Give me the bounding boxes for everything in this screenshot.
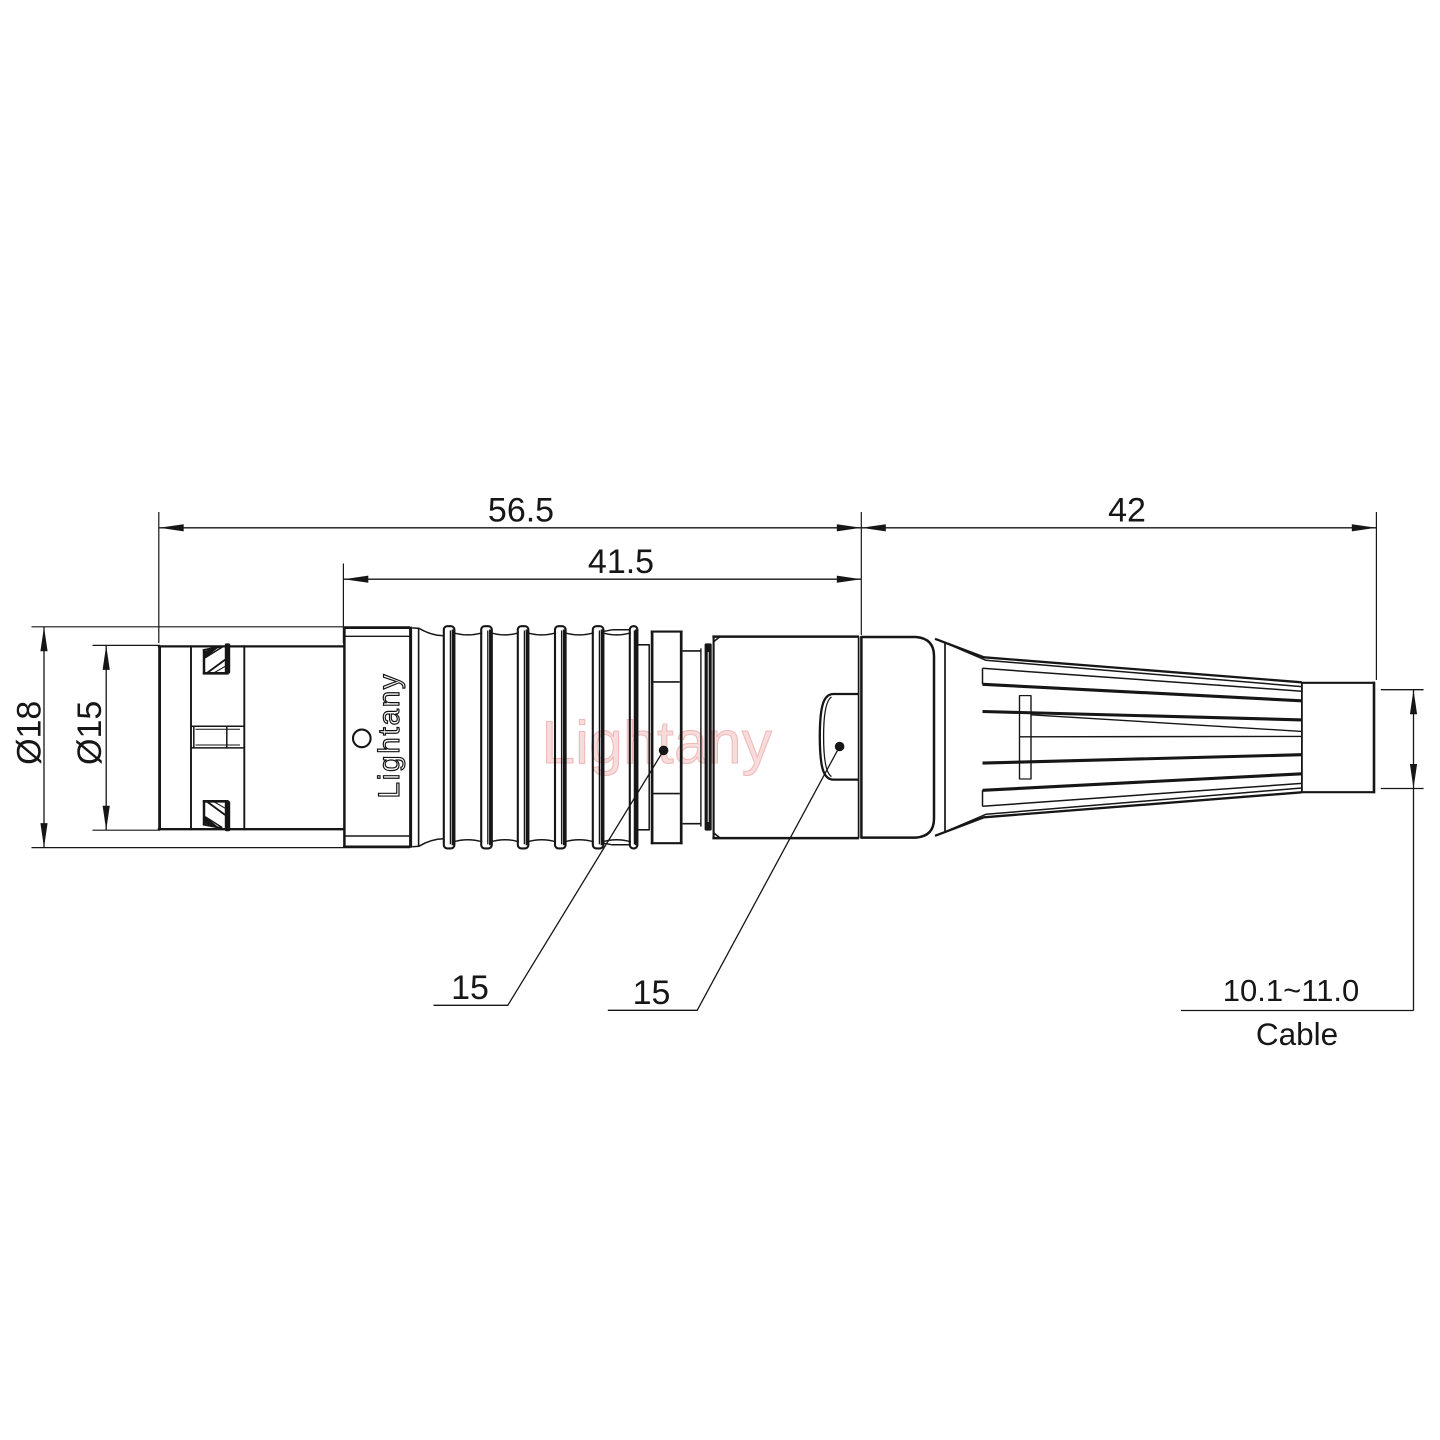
svg-text:56.5: 56.5	[488, 492, 554, 530]
svg-text:42: 42	[1108, 492, 1146, 530]
svg-text:Cable: Cable	[1256, 1016, 1338, 1052]
svg-text:Lightany: Lightany	[373, 673, 406, 799]
svg-text:41.5: 41.5	[588, 543, 654, 581]
svg-text:15: 15	[451, 969, 489, 1007]
svg-text:10.1~11.0: 10.1~11.0	[1223, 973, 1359, 1008]
svg-text:Lightany: Lightany	[542, 709, 773, 776]
svg-text:Ø18: Ø18	[11, 701, 49, 765]
svg-text:Ø15: Ø15	[71, 701, 109, 765]
svg-text:15: 15	[633, 974, 671, 1012]
